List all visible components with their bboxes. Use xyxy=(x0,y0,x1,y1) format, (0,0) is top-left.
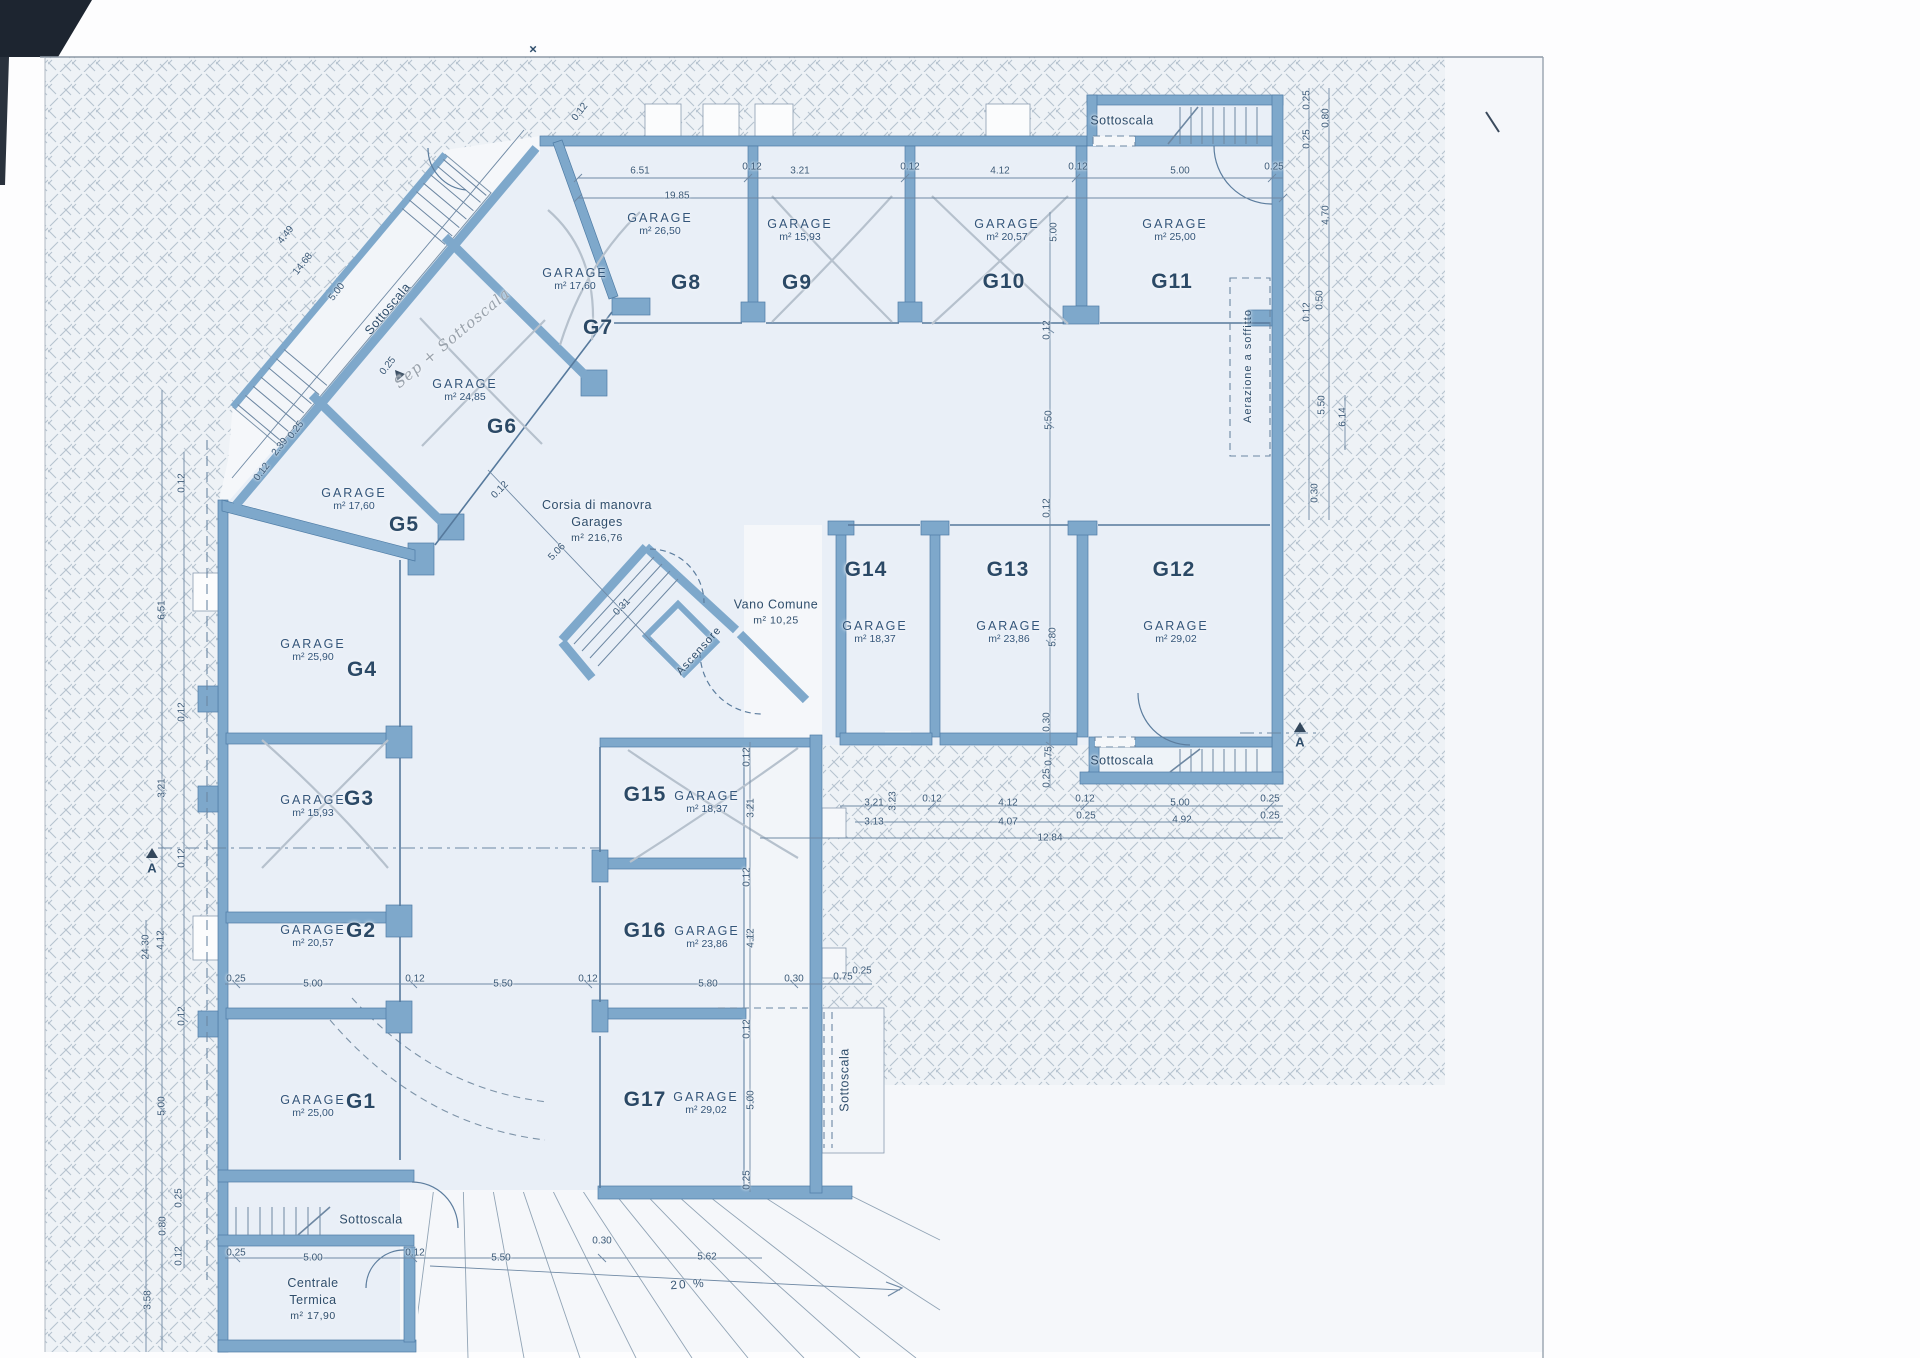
room-meta-G4: GARAGEm² 25,90 xyxy=(280,637,346,663)
vano-comune: Vano Comunem² 10,25 xyxy=(734,596,819,627)
dimension-label: 4.92 xyxy=(1172,815,1191,826)
dimension-label: 5.50 xyxy=(491,1253,510,1264)
dimension-label: 0.12 xyxy=(405,1248,424,1259)
room-meta-G11: GARAGEm² 25,00 xyxy=(1142,217,1208,243)
corsia-di-manovra: Corsia di manovraGaragesm² 216,76 xyxy=(542,497,652,545)
dimension-label: 0.25 xyxy=(1042,768,1053,787)
dimension-label: 0.12 xyxy=(177,1006,188,1025)
room-name-G5: G5 xyxy=(389,513,419,537)
dimension-label: 0.25 xyxy=(1264,162,1283,173)
dimension-label: 5.50 xyxy=(1317,395,1328,414)
dimension-label: 3.23 xyxy=(888,791,899,810)
dimension-label: 0.12 xyxy=(1068,162,1087,173)
room-meta-G14: GARAGEm² 18,37 xyxy=(842,619,908,645)
dimension-label: 0.25 xyxy=(1302,90,1313,109)
sottoscala-right: Sottoscala xyxy=(1090,753,1153,770)
room-meta-G15: GARAGEm² 18,37 xyxy=(674,789,740,815)
dimension-label: 3.21 xyxy=(746,798,757,817)
dimension-label: 0.25 xyxy=(1260,811,1279,822)
dimension-label: 5.62 xyxy=(697,1252,716,1263)
dimension-label: 0.12 xyxy=(174,1246,185,1265)
room-meta-G2: GARAGEm² 20,57 xyxy=(280,923,346,949)
dimension-label: 0.30 xyxy=(592,1236,611,1247)
dimension-label: 0.12 xyxy=(742,1019,753,1038)
aerazione-soffitto: Aerazione a soffitto xyxy=(1242,309,1254,423)
dimension-label: 5.50 xyxy=(1044,410,1055,429)
dimension-label: 0.25 xyxy=(852,966,871,977)
dimension-label: 5.00 xyxy=(303,1253,322,1264)
room-name-G8: G8 xyxy=(671,271,701,295)
dimension-label: 0.12 xyxy=(742,867,753,886)
floor-plan-scan: G1GARAGEm² 25,00G2GARAGEm² 20,57G3GARAGE… xyxy=(0,0,1920,1358)
dimension-label: 0.12 xyxy=(922,794,941,805)
dimension-label: 0.75 xyxy=(1044,746,1055,765)
room-name-G17: G17 xyxy=(624,1088,667,1112)
dimension-label: 0.30 xyxy=(784,974,803,985)
dimension-label: 0.25 xyxy=(1076,811,1095,822)
room-meta-G3: GARAGEm² 15,93 xyxy=(280,793,346,819)
room-meta-G13: GARAGEm² 23,86 xyxy=(976,619,1042,645)
dimension-label: 4.12 xyxy=(990,166,1009,177)
centrale-termica: CentraleTermicam² 17,90 xyxy=(287,1275,338,1323)
room-name-G11: G11 xyxy=(1151,270,1193,294)
dimension-label: 5.00 xyxy=(1170,166,1189,177)
dimension-label: 0.12 xyxy=(177,702,188,721)
room-meta-G10: GARAGEm² 20,57 xyxy=(974,217,1040,243)
dimension-label: 3.21 xyxy=(864,798,883,809)
dimension-label: 6.51 xyxy=(157,600,168,619)
room-meta-G16: GARAGEm² 23,86 xyxy=(674,924,740,950)
dimension-label: 0.12 xyxy=(1075,794,1094,805)
dimension-label: 5.80 xyxy=(698,979,717,990)
dimension-label: 3.21 xyxy=(157,778,168,797)
dimension-label: 6.51 xyxy=(630,166,649,177)
dimension-label: 0.12 xyxy=(578,974,597,985)
room-name-G14: G14 xyxy=(845,558,888,582)
dimension-label: 5.00 xyxy=(1170,798,1189,809)
room-name-G7: G7 xyxy=(583,316,613,340)
room-name-G2: G2 xyxy=(346,919,376,943)
dimension-label: 4.12 xyxy=(998,798,1017,809)
sottoscala-bottom-left: Sottoscala xyxy=(339,1212,402,1229)
dimension-label: 4.12 xyxy=(156,930,167,949)
dimension-label: 0.25 xyxy=(742,1170,753,1189)
dimension-label: 0.25 xyxy=(226,974,245,985)
dimension-label: 4.70 xyxy=(1321,205,1332,224)
room-name-G1: G1 xyxy=(346,1090,376,1114)
dimension-label: 0.12 xyxy=(405,974,424,985)
dimension-label: 0.12 xyxy=(177,848,188,867)
room-name-G15: G15 xyxy=(624,783,667,807)
dimension-label: 0.12 xyxy=(1302,302,1313,321)
dimension-label: 0.80 xyxy=(158,1216,169,1235)
dimension-label: 5.50 xyxy=(493,979,512,990)
room-name-G3: G3 xyxy=(344,787,374,811)
dimension-label: 0.12 xyxy=(742,162,761,173)
room-name-G6: G6 xyxy=(487,415,517,439)
dimension-label: 0.25 xyxy=(174,1188,185,1207)
ramp-slope-label: 20 % xyxy=(670,1276,706,1292)
dimension-label: 5.80 xyxy=(1048,627,1059,646)
room-meta-G1: GARAGEm² 25,00 xyxy=(280,1093,346,1119)
sottoscala-top-right: Sottoscala xyxy=(1090,113,1153,130)
top-reference-mark: × xyxy=(529,42,537,57)
dimension-label: 3.58 xyxy=(143,1290,154,1309)
dimension-label: 5.00 xyxy=(746,1090,757,1109)
dimension-label: 3.13 xyxy=(864,817,883,828)
room-meta-G9: GARAGEm² 15,93 xyxy=(767,217,833,243)
sottoscala-vertical: Sottoscala xyxy=(837,1048,854,1111)
section-marker-a-right: A xyxy=(1295,735,1304,750)
room-name-G16: G16 xyxy=(624,919,667,943)
dimension-label: 19.85 xyxy=(664,191,689,202)
section-marker-a-left: A xyxy=(147,861,156,876)
dimension-label: 5.00 xyxy=(303,979,322,990)
room-meta-G5: GARAGEm² 17,60 xyxy=(321,486,387,512)
dimension-label: 24.30 xyxy=(141,934,152,959)
dimension-label: 0.30 xyxy=(1042,712,1053,731)
dimension-label: 0.12 xyxy=(900,162,919,173)
room-meta-G8: GARAGEm² 26,50 xyxy=(627,211,693,237)
dimension-label: 0.12 xyxy=(1042,320,1053,339)
room-meta-G7: GARAGEm² 17,60 xyxy=(542,266,608,292)
dimension-label: 0.80 xyxy=(1321,108,1332,127)
dimension-label: 0.25 xyxy=(1260,794,1279,805)
room-meta-G12: GARAGEm² 29,02 xyxy=(1143,619,1209,645)
dimension-label: 0.30 xyxy=(1310,483,1321,502)
dimension-label: 0.50 xyxy=(1315,290,1326,309)
dimension-label: 0.25 xyxy=(226,1248,245,1259)
dimension-label: 0.75 xyxy=(833,972,852,983)
room-meta-G17: GARAGEm² 29,02 xyxy=(673,1090,739,1116)
dimension-label: 3.21 xyxy=(790,166,809,177)
room-name-G12: G12 xyxy=(1153,558,1196,582)
dimension-label: 0.25 xyxy=(1302,129,1313,148)
dimension-label: 5.00 xyxy=(157,1096,168,1115)
dimension-label: 0.12 xyxy=(1042,498,1053,517)
dimension-label: 4.12 xyxy=(746,928,757,947)
dimension-label: 6.14 xyxy=(1338,407,1349,426)
dimension-label: 0.12 xyxy=(177,473,188,492)
room-name-G9: G9 xyxy=(782,271,812,295)
dimension-label: 5.00 xyxy=(1049,222,1060,241)
dimension-label: 12.84 xyxy=(1037,833,1062,844)
room-name-G10: G10 xyxy=(983,270,1026,294)
room-meta-G6: GARAGEm² 24,85 xyxy=(432,377,498,403)
dimension-label: 0.12 xyxy=(742,747,753,766)
dimension-label: 4.07 xyxy=(998,817,1017,828)
room-name-G13: G13 xyxy=(987,558,1030,582)
floor-plan-drawing xyxy=(0,0,1920,1358)
room-name-G4: G4 xyxy=(347,658,377,682)
